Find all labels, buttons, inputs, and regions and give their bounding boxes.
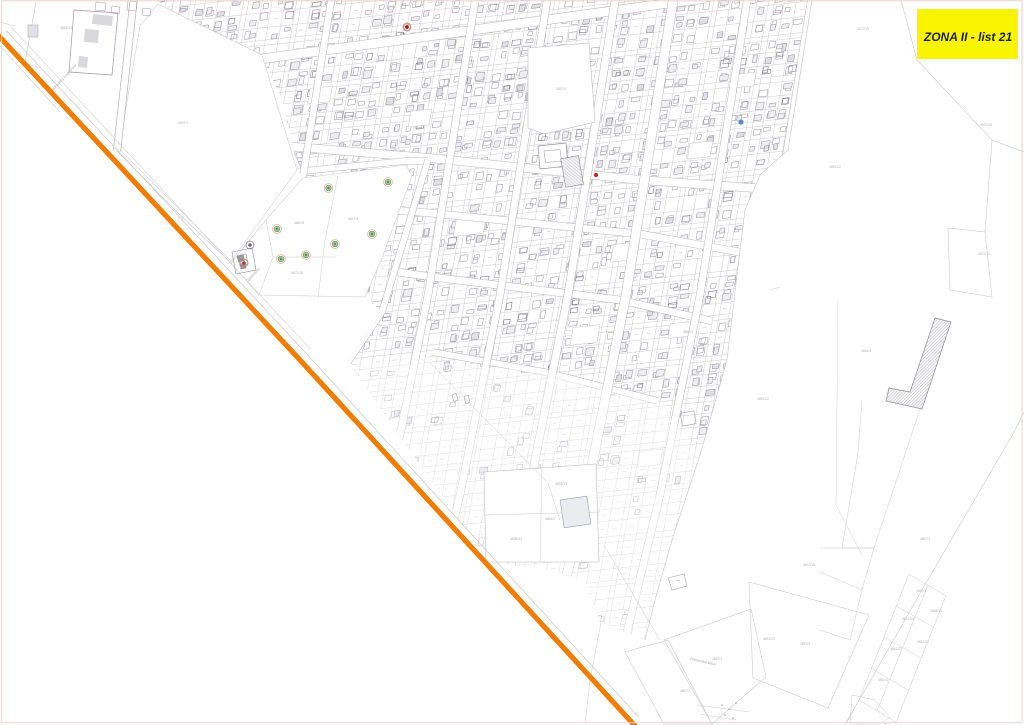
svg-text:4658/13: 4658/13 — [510, 537, 522, 541]
svg-text:4658/13: 4658/13 — [930, 609, 942, 613]
svg-text:4657/1: 4657/1 — [800, 642, 810, 646]
svg-text:4651/22: 4651/22 — [640, 55, 652, 59]
svg-text:4657/1: 4657/1 — [712, 657, 722, 661]
svg-text:4657/1: 4657/1 — [920, 537, 930, 541]
svg-text:4651/22: 4651/22 — [763, 637, 775, 641]
svg-text:4672/15: 4672/15 — [980, 123, 992, 127]
svg-text:4657/1: 4657/1 — [878, 678, 888, 682]
svg-text:4672/15: 4672/15 — [291, 271, 303, 275]
svg-text:4651/22: 4651/22 — [890, 647, 902, 651]
svg-text:4672/15: 4672/15 — [803, 563, 815, 567]
svg-text:4657/1: 4657/1 — [680, 689, 690, 693]
svg-text:4651/22: 4651/22 — [917, 640, 929, 644]
svg-text:4672/15: 4672/15 — [857, 27, 869, 31]
svg-text:4657/1: 4657/1 — [178, 121, 188, 125]
svg-text:4657/1: 4657/1 — [556, 87, 566, 91]
svg-text:4640/8: 4640/8 — [294, 221, 304, 225]
svg-text:4672/15: 4672/15 — [978, 252, 990, 256]
svg-text:4657/1: 4657/1 — [916, 589, 926, 593]
svg-text:4672/15: 4672/15 — [902, 617, 914, 621]
svg-text:4664/2: 4664/2 — [683, 330, 693, 334]
svg-text:4658/13: 4658/13 — [555, 482, 567, 486]
svg-text:4664/2: 4664/2 — [861, 349, 871, 353]
svg-text:4651/22: 4651/22 — [829, 165, 841, 169]
svg-text:ZONA II - list 21: ZONA II - list 21 — [923, 30, 1013, 44]
svg-text:4658/13: 4658/13 — [60, 26, 72, 30]
svg-text:4657/1: 4657/1 — [348, 217, 358, 221]
svg-text:4651/22: 4651/22 — [757, 397, 769, 401]
svg-text:4664/2: 4664/2 — [545, 517, 555, 521]
